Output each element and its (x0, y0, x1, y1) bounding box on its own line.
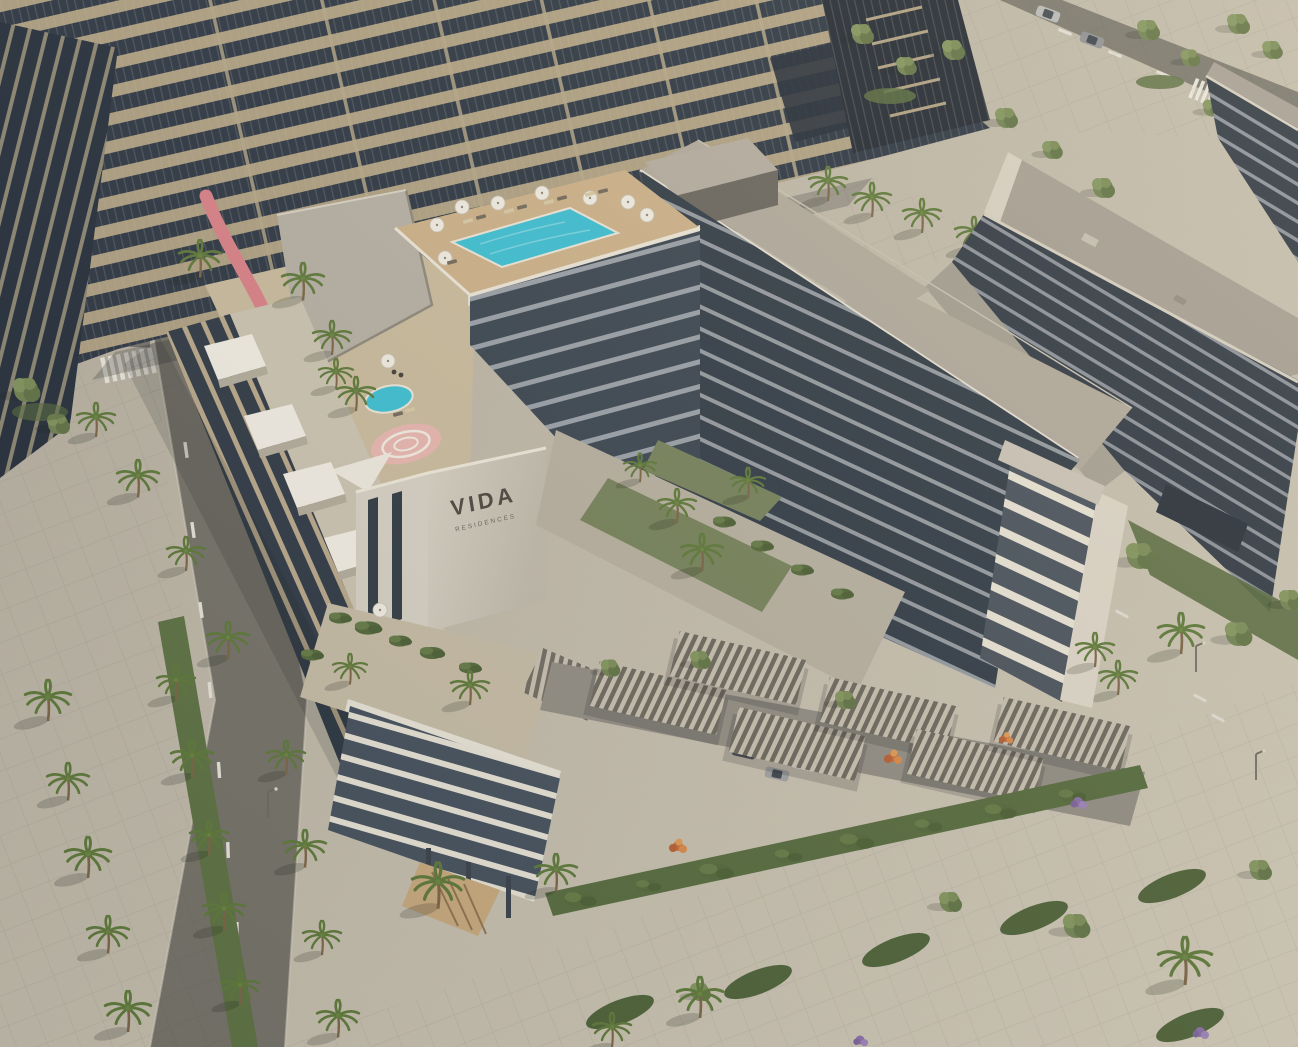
aerial-render-stage: VIDA RESIDENCES (0, 0, 1298, 1047)
aerial-render: VIDA RESIDENCES (0, 0, 1298, 1047)
sunlight-overlay (0, 0, 1298, 1047)
